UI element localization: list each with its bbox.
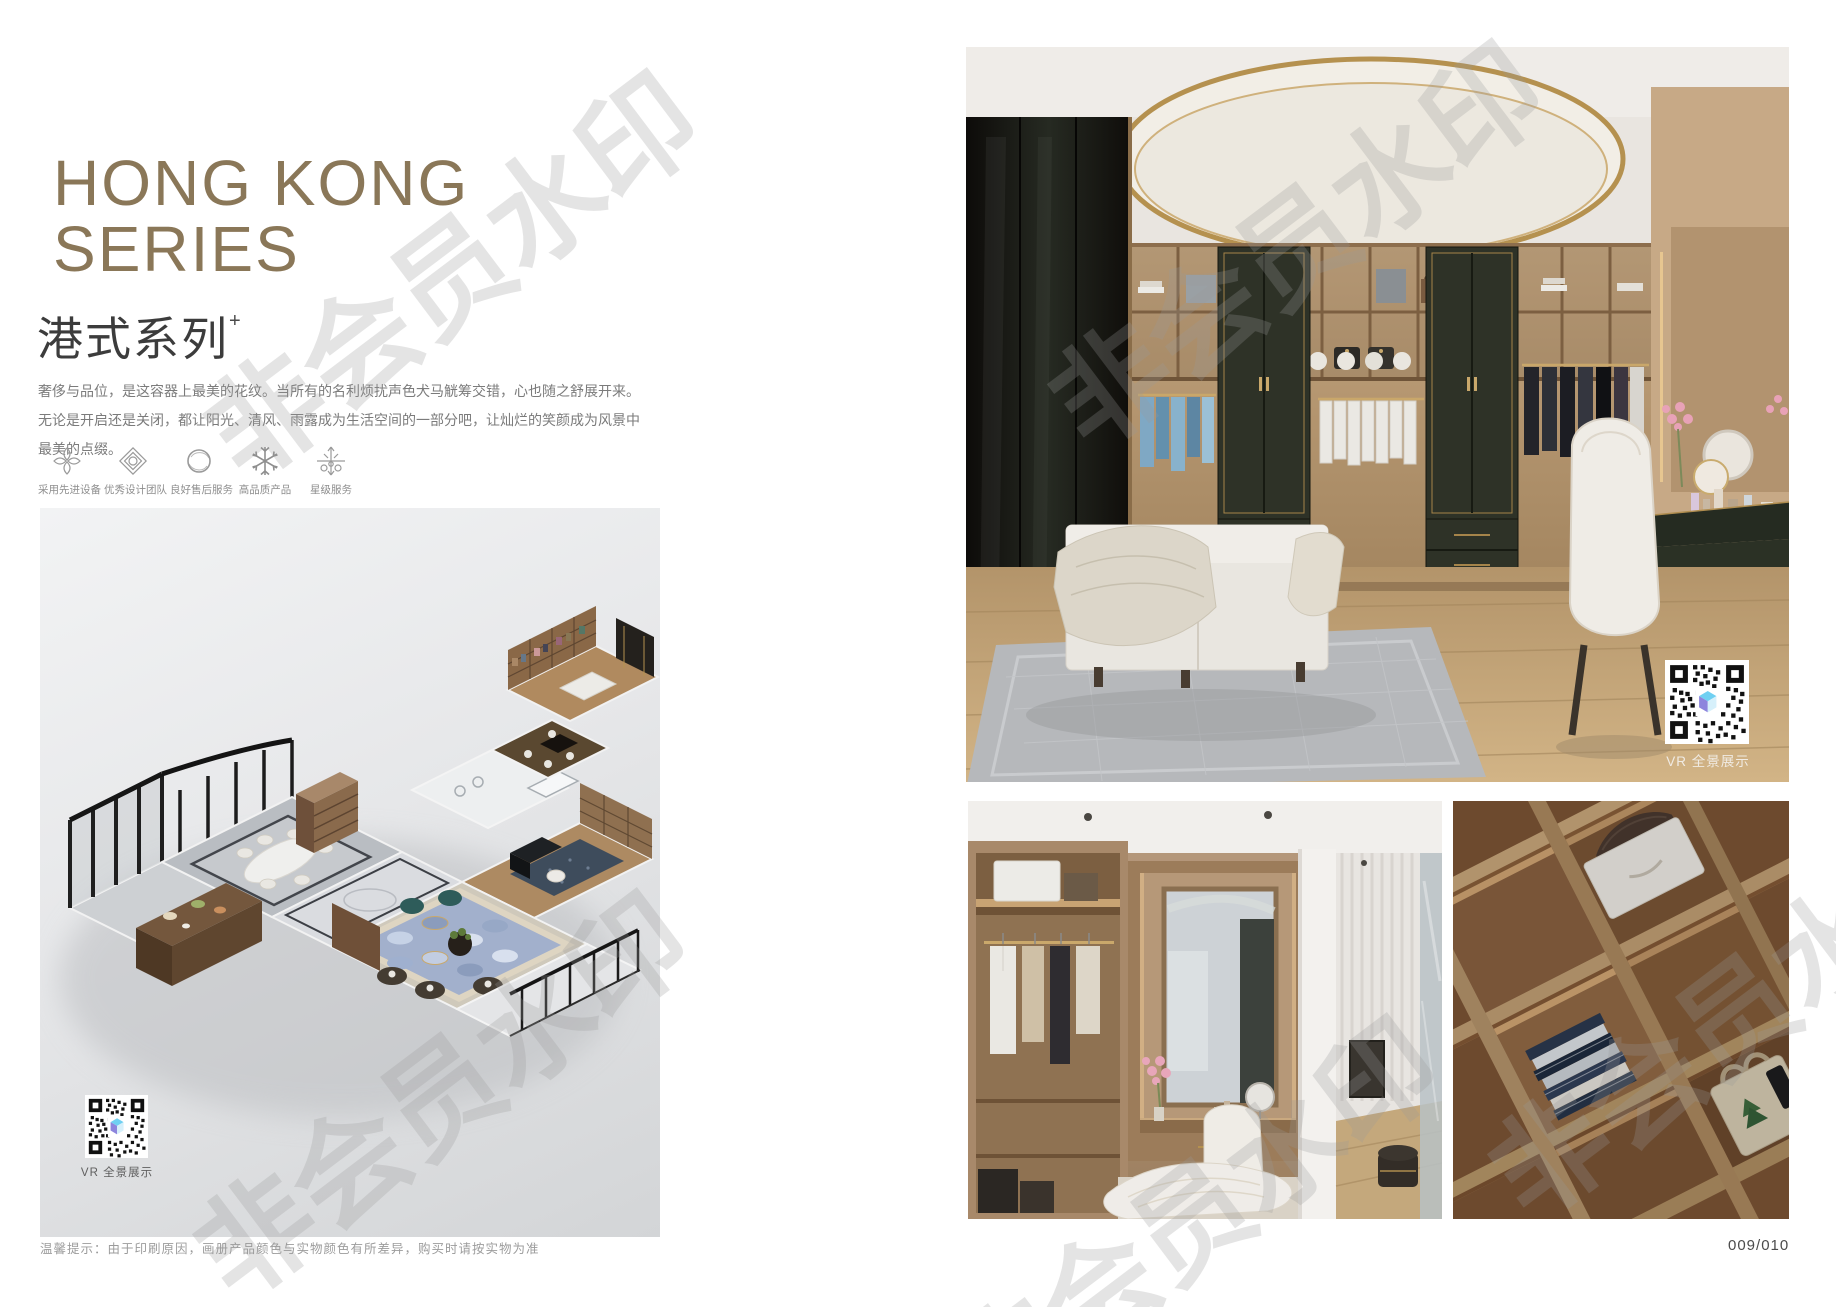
walkin-closet-photo: VR 全景展示 bbox=[966, 47, 1789, 782]
showcase-vr-qr-code bbox=[1665, 660, 1749, 744]
floorplan-vr-qr-code bbox=[85, 1095, 148, 1158]
floorplan-image: VR 全景展示 bbox=[40, 508, 660, 1237]
series-title-line1: HONG KONG bbox=[53, 150, 469, 216]
feature-after-sales: 良好售后服务 bbox=[170, 445, 228, 497]
catalog-page: HONG KONG SERIES 港式系列+ 奢侈与品位，是这容器上最美的花纹。… bbox=[0, 0, 1836, 1307]
shelf-closeup-photo bbox=[1453, 801, 1789, 1219]
plus-superscript: + bbox=[229, 310, 243, 332]
feature-design-team: 优秀设计团队 bbox=[104, 445, 162, 497]
showcase-vr-label: VR 全景展示 bbox=[1654, 750, 1762, 770]
feature-label: 高品质产品 bbox=[236, 482, 294, 497]
ornament-icon bbox=[315, 445, 347, 477]
feature-quality-product: 高品质产品 bbox=[236, 445, 294, 497]
rosette-icon bbox=[117, 445, 149, 477]
page-number: 009/010 bbox=[1728, 1237, 1789, 1254]
feature-label: 采用先进设备 bbox=[38, 482, 96, 497]
pinwheel-icon bbox=[51, 445, 83, 477]
snowflake-icon bbox=[249, 445, 281, 477]
feature-star-service: 星级服务 bbox=[302, 445, 360, 497]
series-title-en: HONG KONG SERIES bbox=[53, 150, 469, 282]
feature-label: 星级服务 bbox=[302, 482, 360, 497]
feature-advanced-equipment: 采用先进设备 bbox=[38, 445, 96, 497]
dressing-area-photo bbox=[968, 801, 1442, 1219]
dressing-area-render bbox=[968, 801, 1442, 1219]
series-title-line2: SERIES bbox=[53, 216, 469, 282]
feature-label: 优秀设计团队 bbox=[104, 482, 162, 497]
series-title-cn: 港式系列+ bbox=[37, 303, 243, 369]
print-disclaimer: 温馨提示：由于印刷原因，画册产品颜色与实物颜色有所差异，购买时请按实物为准 bbox=[40, 1238, 540, 1257]
shelf-closeup-render bbox=[1453, 801, 1789, 1219]
floorplan-vr-label: VR 全景展示 bbox=[70, 1164, 164, 1180]
feature-label: 良好售后服务 bbox=[170, 482, 228, 497]
feature-icon-row: 采用先进设备 优秀设计团队 良好售后服务 bbox=[38, 445, 360, 497]
ring-icon bbox=[183, 445, 215, 477]
